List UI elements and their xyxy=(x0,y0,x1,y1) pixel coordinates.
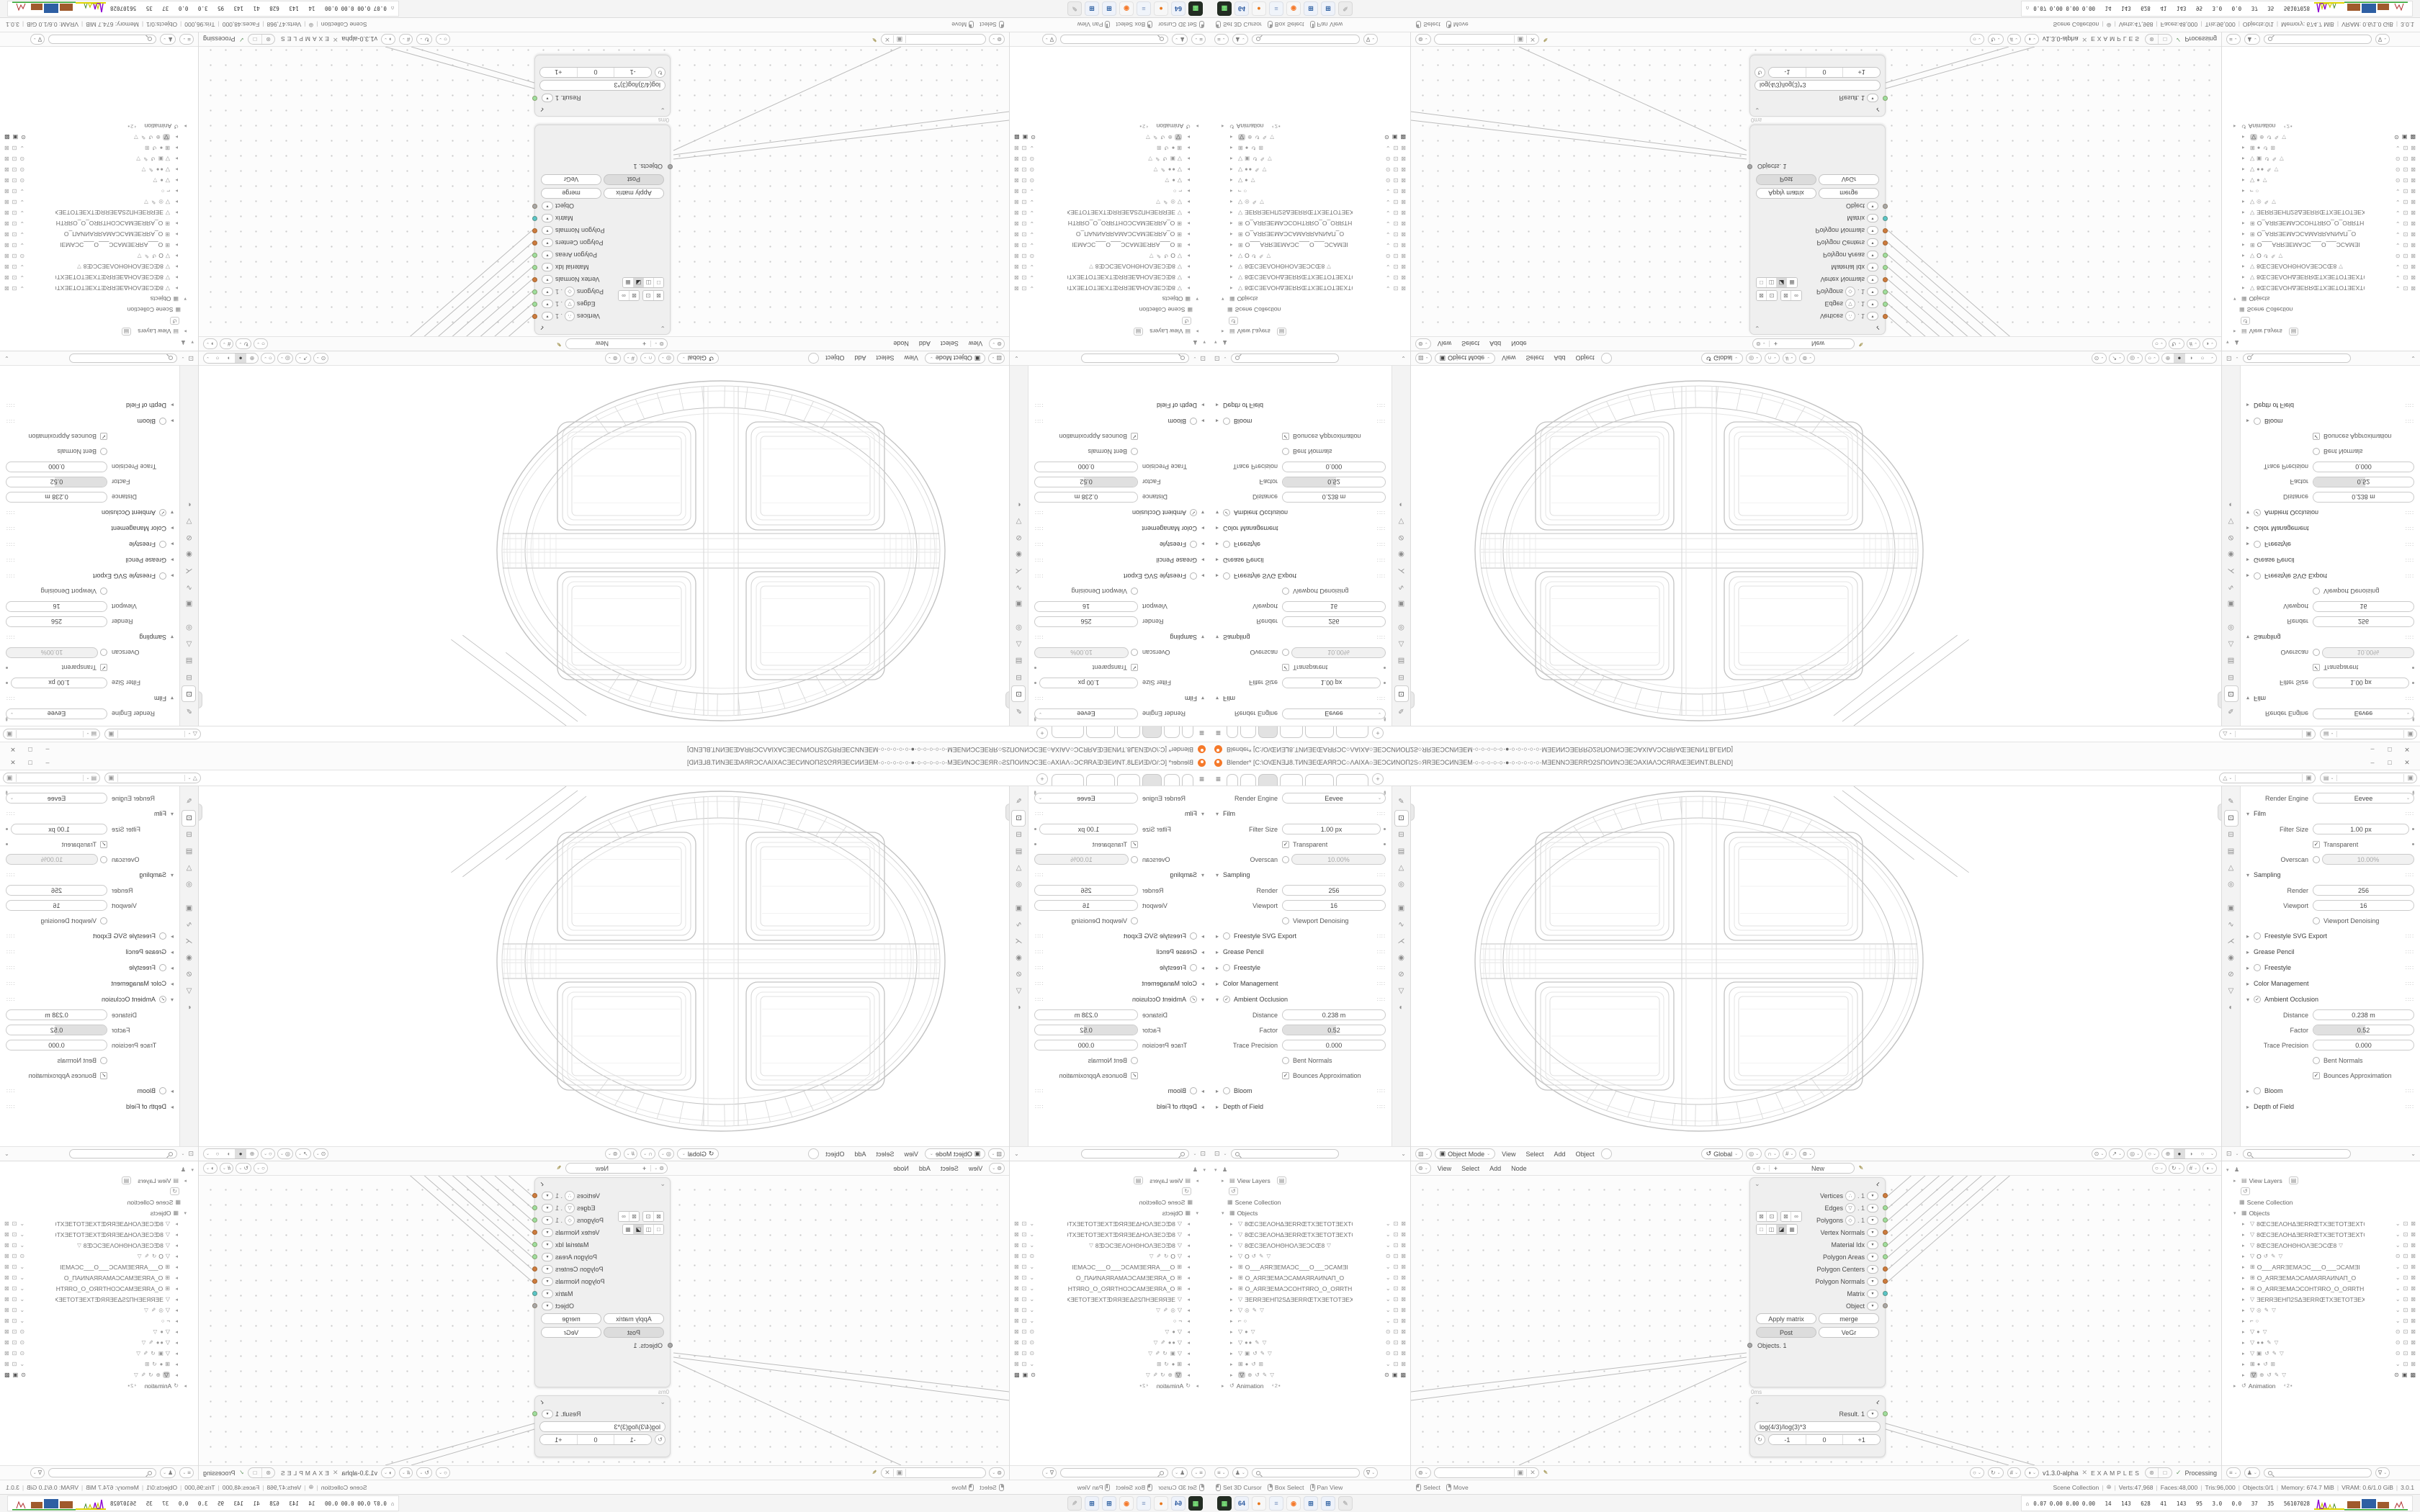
system-monitor[interactable]: ⌂0.07 0.00 0.00 0.00 14 143 628 41 143 9… xyxy=(2021,1495,2413,1511)
output-socket[interactable] xyxy=(1883,1242,1888,1247)
object-row[interactable]: ▸⊞O___AЯRƎEMAƆC___O___ƆCAMƎI⌄⊡⊠ xyxy=(1013,1261,1206,1272)
render-toggle[interactable]: ⊠ xyxy=(1401,253,1406,259)
render-toggle[interactable]: ⊠ xyxy=(1401,242,1406,248)
viewport-menu-view[interactable]: View xyxy=(1498,1151,1519,1158)
tree-name-field[interactable]: ▣✕ xyxy=(1434,1467,1539,1478)
modifiers-tab-icon[interactable]: ∿ xyxy=(2224,917,2238,933)
object-row[interactable]: ▸▽●● ✎ ▽⊙⊡⊠ xyxy=(1013,1337,1206,1348)
display-toggle-button[interactable]: ⊠ xyxy=(1781,291,1791,300)
visibility-toggle[interactable]: ⌄ xyxy=(2396,220,2401,227)
object-row[interactable]: ▸⊞O_AЯRƎEMAƆCOHTЯRO_O_OЯRTH⌄⊡⊠ xyxy=(2226,218,2417,229)
socket-dropdown[interactable]: ▼ xyxy=(1867,1241,1878,1249)
orientation-dropdown[interactable]: ↺Global⌄ xyxy=(1701,1148,1744,1159)
search-input[interactable] xyxy=(2243,354,2351,363)
display-mode-row[interactable]: ▾♟ xyxy=(1214,337,1407,348)
render-tab-icon[interactable]: ⊡ xyxy=(182,810,197,827)
filter-icon[interactable]: ∇⌄ xyxy=(1363,34,1378,45)
visibility-toggle[interactable]: ⊙ xyxy=(2394,1372,2399,1378)
screen-toggle[interactable]: ⊡ xyxy=(2403,1318,2408,1324)
view-layer-button[interactable]: ▤ xyxy=(1277,1176,1287,1184)
output-socket[interactable] xyxy=(1883,1291,1888,1296)
workspace-tab-1[interactable] xyxy=(1227,774,1238,786)
render-toggle[interactable]: ⊠ xyxy=(4,1253,9,1259)
screen-toggle[interactable]: ⊡ xyxy=(12,231,17,238)
screen-toggle[interactable]: ▣ xyxy=(1023,134,1028,140)
output-socket[interactable] xyxy=(532,1303,537,1308)
screen-toggle[interactable]: ⊡ xyxy=(12,1318,17,1324)
tool-tab-icon[interactable]: ✎ xyxy=(1012,702,1026,719)
screen-toggle[interactable]: ⊡ xyxy=(1022,1307,1027,1313)
checkbox[interactable] xyxy=(100,917,107,924)
section-chevron-icon[interactable]: ▾ xyxy=(2246,996,2254,1003)
render-toggle[interactable]: ⊠ xyxy=(4,285,9,292)
object-row[interactable]: ▸⊞O___AЯRƎEMAƆC___O___ƆCAMƎI⌄⊡⊠ xyxy=(1013,240,1206,251)
visibility-toggle[interactable]: ⌄ xyxy=(2396,1285,2401,1292)
collapse-icon[interactable]: ⌄ xyxy=(660,1398,665,1406)
scene-selector-value[interactable] xyxy=(2236,773,2302,783)
output-tab-icon[interactable]: ⊟ xyxy=(2224,827,2238,843)
scene-collection-row[interactable]: ▦Scene Collection xyxy=(1013,305,1206,315)
node-canvas[interactable]: ⌄⌐Vertices∴. 1▼Edges▽. 1▼Polygons◇. 1▼Ve… xyxy=(199,1176,1009,1465)
wireframe-shading-icon[interactable]: ⊕ xyxy=(2162,1149,2174,1158)
outliner-tree[interactable]: ▾♟▸▤View Layers▤↺▦Scene Collection▾▦Obje… xyxy=(1210,1161,1410,1465)
section-sampling[interactable]: ▾Sampling∷∷ xyxy=(1216,629,1386,645)
section-depth-of-field[interactable]: ▸Depth of Field∷∷ xyxy=(6,397,174,413)
output-socket[interactable] xyxy=(532,1254,537,1259)
display-toggle-button[interactable]: ∞ xyxy=(1791,291,1801,300)
taskbar-app-firefox[interactable]: ● xyxy=(1252,1496,1266,1511)
visibility-toggle[interactable]: ⌄ xyxy=(1386,145,1391,151)
render-toggle[interactable]: ⊠ xyxy=(2411,1285,2416,1292)
screen-toggle[interactable]: ⊡ xyxy=(1022,1274,1027,1281)
screen-toggle[interactable]: ⊡ xyxy=(12,1361,17,1367)
section-chevron-icon[interactable]: ▸ xyxy=(166,1088,174,1094)
visibility-toggle[interactable]: ⊙ xyxy=(19,1253,24,1259)
outliner-header-icon-0[interactable]: ≡⌄ xyxy=(2226,1467,2241,1478)
render-toggle[interactable]: ⊠ xyxy=(4,1242,9,1248)
output-socket[interactable] xyxy=(1883,314,1888,319)
screen-toggle[interactable]: ▣ xyxy=(2402,134,2408,140)
object-row[interactable]: ▸▽⊕ ↺ ✎ ▽⊙▣▩ xyxy=(2226,1369,2417,1380)
close-icon[interactable]: ✕ xyxy=(333,1469,339,1477)
outliner-tree[interactable]: ▾♟▸▤View Layers▤↺▦Scene Collection▾▦Obje… xyxy=(0,1161,198,1465)
render-toggle[interactable]: ⊠ xyxy=(2411,188,2416,194)
world-tab-icon[interactable]: ◎ xyxy=(2224,876,2238,893)
sverchok-viewer-node[interactable]: ⌄⌐Vertices∴. 1▼Edges▽. 1▼Polygons◇. 1▼Ve… xyxy=(534,125,671,335)
sv-toggle-pair[interactable]: ⊛□ xyxy=(2145,34,2172,45)
render-toggle[interactable]: ⊠ xyxy=(1014,199,1019,205)
viewport-editor-icon[interactable]: ▧⌄ xyxy=(988,353,1005,364)
visibility-toggle[interactable]: ⊙ xyxy=(1031,1372,1036,1378)
section-chevron-icon[interactable]: ▾ xyxy=(2246,510,2254,516)
output-socket[interactable] xyxy=(1883,1205,1888,1210)
sv-pair-icon[interactable]: □ xyxy=(2159,1468,2172,1477)
world-tab-icon[interactable]: ◎ xyxy=(182,876,197,893)
viewport-3d[interactable]: ▧⌄▣Object Mode⌄ViewSelectAddObject↺Globa… xyxy=(199,786,1009,1161)
node-menu-add[interactable]: Add xyxy=(915,1165,934,1172)
object-data-tab-icon[interactable]: ▽ xyxy=(2224,513,2238,529)
section-chevron-icon[interactable]: ▾ xyxy=(166,634,174,641)
section-chevron-icon[interactable]: ▸ xyxy=(166,1104,174,1110)
outliner-search-input[interactable] xyxy=(48,35,156,44)
shade-toggle-button[interactable]: ▦ xyxy=(1787,278,1797,287)
screen-toggle[interactable]: ⊡ xyxy=(12,1220,17,1227)
screen-toggle[interactable]: ⊡ xyxy=(1022,1350,1027,1356)
node-button-merge[interactable]: merge xyxy=(541,1313,601,1324)
render-toggle[interactable]: ⊠ xyxy=(1401,1242,1406,1248)
object-row[interactable]: ▸▽▣ ↺ ✎ ▽⊙⊡⊠ xyxy=(2226,1348,2417,1359)
render-toggle[interactable]: ⊠ xyxy=(4,1285,9,1292)
new-tree-button[interactable]: ⊚⌄+New xyxy=(565,1163,668,1174)
section-checkbox[interactable] xyxy=(1190,418,1197,425)
object-row[interactable]: ▸▽▣ ↺ ✎ ▽⊙⊡⊠ xyxy=(3,1348,194,1359)
view-layer-button[interactable]: ▤ xyxy=(2289,328,2299,336)
object-row[interactable]: ▸▽▣ ↺ ✎ ▽⊙⊡⊠ xyxy=(3,153,194,164)
object-row[interactable]: ▸⊞O_AЯRƎEMAƆCAMAЯRAИNAΠ_O⌄⊡⊠ xyxy=(1013,1272,1206,1283)
node-menu-node[interactable]: Node xyxy=(889,341,913,348)
output-socket[interactable] xyxy=(532,1193,537,1198)
annotate-circle[interactable] xyxy=(808,353,819,364)
visibility-toggle[interactable]: ⌄ xyxy=(2396,1220,2401,1227)
socket-dropdown[interactable]: ▼ xyxy=(1867,1410,1878,1418)
history-row[interactable]: ↺ xyxy=(3,315,194,326)
visibility-toggle[interactable]: ⌄ xyxy=(2396,231,2401,238)
search-input[interactable] xyxy=(1231,1149,1339,1158)
screen-toggle[interactable]: ⊡ xyxy=(12,1231,17,1238)
screen-toggle[interactable]: ⊡ xyxy=(12,264,17,270)
socket-dropdown[interactable]: ▼ xyxy=(1867,239,1878,248)
display-mode-row[interactable]: ▾♟ xyxy=(1214,1164,1407,1175)
taskbar-app-firefox[interactable]: ● xyxy=(1154,1,1168,16)
collapse-icon[interactable]: ⌄ xyxy=(660,107,665,114)
section-chevron-icon[interactable]: ▸ xyxy=(2246,526,2254,532)
checkbox[interactable]: ✓ xyxy=(1282,1072,1289,1079)
section-film[interactable]: ▾Film∷∷ xyxy=(6,690,174,706)
render-toggle[interactable]: ⊠ xyxy=(1014,166,1019,173)
section-freestyle-svg-export[interactable]: ▸Freestyle SVG Export∷∷ xyxy=(1034,568,1204,584)
object-row[interactable]: ▸⊞● ↺ ⊞⌄⊡⊠ xyxy=(3,143,194,153)
visibility-toggle[interactable]: ⊙ xyxy=(1031,134,1036,140)
render-toggle[interactable]: ⊠ xyxy=(4,274,9,281)
viewport-menu-select[interactable]: Select xyxy=(872,1151,897,1158)
output-socket[interactable] xyxy=(532,265,537,270)
section-chevron-icon[interactable]: ▸ xyxy=(166,933,174,940)
render-toggle[interactable]: ⊠ xyxy=(1014,1220,1019,1227)
value-field[interactable]: 0.238 m xyxy=(1034,1009,1138,1020)
section-chevron-icon[interactable]: ▸ xyxy=(166,418,174,425)
view-layer-tab-icon[interactable]: ▤ xyxy=(2224,843,2238,860)
wrap-icon[interactable]: ↻ xyxy=(655,67,665,78)
sv-footer-icon-3[interactable]: ◑⌄ xyxy=(2025,1467,2039,1478)
collapse-icon[interactable]: ⌄ xyxy=(1754,1180,1760,1188)
shade-toggle-button[interactable]: □ xyxy=(653,278,663,287)
render-toggle[interactable]: ⊠ xyxy=(2411,253,2416,259)
animation-row[interactable]: ▸↺Animation⁴2▪ xyxy=(1214,1380,1407,1391)
section-checkbox[interactable]: ✓ xyxy=(159,509,166,516)
section-chevron-icon[interactable]: ▸ xyxy=(1216,933,1223,940)
section-chevron-icon[interactable]: ▾ xyxy=(1216,811,1223,817)
visibility-toggle[interactable]: ⌄ xyxy=(2396,285,2401,292)
section-bloom[interactable]: ▸Bloom∷∷ xyxy=(2246,1083,2414,1099)
screen-toggle[interactable]: ⊡ xyxy=(2403,242,2408,248)
section-chevron-icon[interactable]: ▸ xyxy=(1216,949,1223,955)
render-toggle[interactable]: ▩ xyxy=(1014,134,1020,140)
taskbar-app-blender[interactable]: ◉ xyxy=(1286,1,1301,16)
display-toggle-button[interactable]: ⊠ xyxy=(629,291,639,300)
section-chevron-icon[interactable]: ▾ xyxy=(1197,811,1204,817)
output-socket[interactable] xyxy=(1883,228,1888,233)
scene-tab-icon[interactable]: △ xyxy=(1394,636,1409,652)
section-depth-of-field[interactable]: ▸Depth of Field∷∷ xyxy=(6,1099,174,1115)
visibility-toggle[interactable]: ⌄ xyxy=(19,285,24,292)
wrap-icon[interactable]: ↻ xyxy=(655,1434,665,1445)
shade-toggle-button[interactable]: ◪ xyxy=(1777,278,1787,287)
tool-tab-icon[interactable]: ✎ xyxy=(2224,702,2238,719)
screen-toggle[interactable]: ⊡ xyxy=(1022,1242,1027,1248)
sverchok-version[interactable]: v1.3.0-alpha xyxy=(2043,36,2079,43)
menu-icon[interactable]: ≡ xyxy=(1199,728,1204,738)
object-row[interactable]: ▸▽8ŒCƎEΛOHΔƎERRŒTXƎETOTƎEXTŒ8⌄⊡⊠ xyxy=(1013,1218,1206,1229)
copy-icon[interactable]: ▣ xyxy=(105,774,118,782)
viewport-menu-select[interactable]: Select xyxy=(872,355,897,362)
render-toggle[interactable]: ⊠ xyxy=(1014,1307,1019,1313)
render-toggle[interactable]: ⊠ xyxy=(4,1296,9,1302)
section-freestyle-svg-export[interactable]: ▸Freestyle SVG Export∷∷ xyxy=(1216,928,1386,944)
section-chevron-icon[interactable]: ▸ xyxy=(1216,981,1223,987)
output-socket[interactable] xyxy=(532,1411,537,1416)
toggle-circle[interactable] xyxy=(100,649,107,657)
history-icon[interactable]: ↺ xyxy=(170,317,179,325)
checkbox[interactable] xyxy=(2313,588,2320,595)
object-row[interactable]: ▸▽8ŒCƎEΛOHΔƎERRŒTXƎETOTƎEXTŒ8⌄⊡⊠ xyxy=(1013,283,1206,294)
scene-collection-row[interactable]: ▦Scene Collection xyxy=(1214,305,1407,315)
workspace-tab-3[interactable] xyxy=(1258,774,1278,786)
viewport-menu-object[interactable]: Object xyxy=(1572,355,1598,362)
screen-toggle[interactable]: ⊡ xyxy=(2403,231,2408,238)
sverchok-formula-node[interactable]: ⌄⌐Result. 1▼log(4/3)/log(3)*3↻-10+1 xyxy=(534,1395,671,1457)
tree-name-field[interactable]: ▣✕ xyxy=(881,34,986,45)
screen-toggle[interactable]: ⊡ xyxy=(1022,199,1027,205)
object-tab-icon[interactable]: ▣ xyxy=(1012,595,1026,612)
visibility-toggle[interactable]: ⌄ xyxy=(1386,1318,1391,1324)
object-row[interactable]: ▸▽● ▽⊙⊡⊠ xyxy=(1013,1326,1206,1337)
physics-tab-icon[interactable]: ◉ xyxy=(2224,546,2238,562)
sv-footer-icon-2[interactable]: #⌄ xyxy=(399,1467,413,1478)
render-toggle[interactable]: ▩ xyxy=(1014,1372,1020,1378)
value-field[interactable]: 16 xyxy=(1282,601,1386,612)
socket-dropdown[interactable]: ▼ xyxy=(1867,1277,1878,1286)
search-input[interactable] xyxy=(2243,1149,2351,1158)
constraints-tab-icon[interactable]: ⊘ xyxy=(2224,966,2238,983)
visibility-toggle[interactable]: ⊙ xyxy=(1386,1339,1391,1346)
material-tab-icon[interactable]: ◐ xyxy=(182,999,197,1016)
render-toggle[interactable]: ⊠ xyxy=(2411,177,2416,184)
node-header-icon-1[interactable]: ↻⌄ xyxy=(2169,338,2184,349)
output-socket[interactable] xyxy=(532,1242,537,1247)
taskbar-app-blender[interactable]: ◉ xyxy=(1286,1496,1301,1511)
node-button-vegr[interactable]: VeGr xyxy=(1819,174,1879,185)
history-row[interactable]: ↺ xyxy=(2226,315,2417,326)
object-row[interactable]: ▸▽8ŒCƎEΛOHΘHOΛƎEƆCŒ8▽⌄⊡⊠ xyxy=(2226,1240,2417,1251)
section-chevron-icon[interactable]: ▸ xyxy=(2246,965,2254,971)
screen-toggle[interactable]: ⊡ xyxy=(1022,166,1027,173)
workspace-tab-5[interactable] xyxy=(1305,726,1334,738)
visibility-toggle[interactable]: ⊙ xyxy=(1384,1372,1389,1378)
section-chevron-icon[interactable]: ▸ xyxy=(2246,418,2254,425)
node-editor-icon[interactable]: ⊚⌄ xyxy=(1415,338,1431,349)
section-checkbox[interactable] xyxy=(1223,932,1230,940)
section-color-management[interactable]: ▸Color Management∷∷ xyxy=(6,976,174,991)
display-toggle-button[interactable]: ⊠ xyxy=(1757,291,1767,300)
magnet-snap-icon[interactable]: ∩⌄ xyxy=(640,1148,655,1159)
taskbar-app-notepad[interactable]: ≡ xyxy=(1137,1,1151,16)
value-field[interactable]: 10.00% xyxy=(1291,854,1386,865)
screen-toggle[interactable]: ⊡ xyxy=(1022,1339,1027,1346)
section-chevron-icon[interactable]: ▸ xyxy=(166,541,174,548)
physics-tab-icon[interactable]: ◉ xyxy=(1012,546,1026,562)
value-field[interactable]: 256 xyxy=(1282,885,1386,896)
value-field[interactable]: 0.000 xyxy=(1034,462,1138,472)
node-header-icon-2[interactable]: #⌄ xyxy=(220,1163,233,1174)
outliner-header-icon-0[interactable]: ≡⌄ xyxy=(2226,34,2241,45)
section-chevron-icon[interactable]: ▸ xyxy=(1216,541,1223,548)
outliner-search-input[interactable] xyxy=(48,1468,156,1477)
object-row[interactable]: ▸▽●● ✎ ▽⊙⊡⊠ xyxy=(1214,164,1407,175)
object-data-tab-icon[interactable]: ▽ xyxy=(1012,513,1026,529)
visibility-toggle[interactable]: ⌄ xyxy=(2396,1318,2401,1324)
render-toggle[interactable]: ⊠ xyxy=(1014,253,1019,259)
particles-tab-icon[interactable]: ⋌ xyxy=(1394,933,1409,950)
socket-dropdown[interactable]: ▼ xyxy=(542,251,553,260)
animation-row[interactable]: ▸↺Animation⁴2▪ xyxy=(1013,1380,1206,1391)
history-row[interactable]: ↺ xyxy=(3,1186,194,1197)
close-icon[interactable]: ✕ xyxy=(2082,1469,2088,1477)
render-toggle[interactable]: ⊠ xyxy=(2411,1274,2416,1281)
render-tab-icon[interactable]: ⊡ xyxy=(2224,685,2238,702)
object-tab-icon[interactable]: ▣ xyxy=(2224,595,2238,612)
screen-toggle[interactable]: ⊡ xyxy=(2403,285,2408,292)
object-row[interactable]: ▸▽8ŒCƎEΛOHΔƎERRŒTXƎETOTƎEXTŒ8⌄⊡⊠ xyxy=(1214,283,1407,294)
search-input[interactable] xyxy=(69,354,177,363)
proportional-edit-icon[interactable]: ⊚⌄ xyxy=(605,353,621,364)
visibility-toggle[interactable]: ⌄ xyxy=(1029,242,1034,248)
value-field[interactable]: 1.00 px xyxy=(2313,824,2409,834)
section-bloom[interactable]: ▸Bloom∷∷ xyxy=(1034,1083,1204,1099)
history-icon[interactable]: ↺ xyxy=(1229,317,1238,325)
render-toggle[interactable]: ⊠ xyxy=(2411,156,2416,162)
socket-dropdown[interactable]: ▼ xyxy=(1867,264,1878,272)
render-tab-icon[interactable]: ⊡ xyxy=(1394,685,1409,702)
tree-mini-icon[interactable]: ▣ xyxy=(1514,1469,1527,1477)
render-toggle[interactable]: ⊠ xyxy=(2411,231,2416,238)
display-toggle-button[interactable]: ⊠ xyxy=(653,1212,663,1221)
visibility-toggle[interactable]: ⌄ xyxy=(1386,1296,1391,1302)
gizmo-icon[interactable]: ↗⌄ xyxy=(295,1148,311,1159)
render-toggle[interactable]: ⊠ xyxy=(1401,1274,1406,1281)
formula-input[interactable]: log(4/3)/log(3)*3 xyxy=(539,80,665,91)
section-chevron-icon[interactable]: ▸ xyxy=(2246,949,2254,955)
viewport-menu-select[interactable]: Select xyxy=(1523,355,1548,362)
title-bar[interactable]: Blender* [C:\O\ŒNƎ⅃8.TИNƎEŒAЯRƆC○ΛAIXA○Ǝ… xyxy=(1210,756,2420,770)
value-field[interactable]: 0.000 xyxy=(6,1040,107,1050)
value-field[interactable]: 256 xyxy=(2313,616,2414,627)
node-editor[interactable]: ⊚⌄ViewSelectAddNode⊚⌄+New✒○⌄↻⌄#⌄◑⌄⌄⌐Vert… xyxy=(199,32,1009,351)
value-field[interactable]: 0.238 m xyxy=(1282,1009,1386,1020)
render-toggle[interactable]: ⊠ xyxy=(1014,242,1019,248)
scene-selector[interactable]: △⌄▣ xyxy=(104,729,201,739)
output-socket[interactable] xyxy=(1883,265,1888,270)
render-toggle[interactable]: ⊠ xyxy=(1014,274,1019,281)
screen-toggle[interactable]: ⊡ xyxy=(1394,1307,1399,1313)
screen-toggle[interactable]: ⊡ xyxy=(2403,177,2408,184)
particles-tab-icon[interactable]: ⋌ xyxy=(182,933,197,950)
screen-toggle[interactable]: ⊡ xyxy=(1022,242,1027,248)
screen-toggle[interactable]: ⊡ xyxy=(12,210,17,216)
socket-dropdown[interactable]: ▼ xyxy=(542,1192,553,1200)
socket-dropdown[interactable]: ▼ xyxy=(1867,1192,1878,1200)
title-bar[interactable]: Blender* [C:\O\ŒNƎ⅃8.TИNƎEŒAЯRƆC○ΛAIXA○Ǝ… xyxy=(0,742,1210,756)
output-socket[interactable] xyxy=(1883,1193,1888,1198)
object-row[interactable]: ▸▽▣ ↺ ✎ ▽⊙⊡⊠ xyxy=(1013,1348,1206,1359)
visibility-toggle[interactable]: ⌄ xyxy=(1029,210,1034,216)
value-field[interactable]: 0.238 m xyxy=(2313,492,2414,503)
visibility-toggle[interactable]: ⌄ xyxy=(19,1242,24,1248)
output-socket[interactable] xyxy=(532,204,537,209)
object-row[interactable]: ▸▽8ŒCƎEΛOHΘHOΛƎEƆCŒ8▽⌄⊡⊠ xyxy=(1013,1240,1206,1251)
scene-collection-row[interactable]: ▦Scene Collection xyxy=(1214,1197,1407,1207)
value-field[interactable]: 0.000 xyxy=(6,462,107,472)
visibility-toggle[interactable]: ⊙ xyxy=(19,1339,24,1346)
value-field[interactable]: 0.238 m xyxy=(6,492,107,503)
screen-toggle[interactable]: ⊡ xyxy=(1394,285,1399,292)
object-row[interactable]: ▸▽● ▽⊙⊡⊠ xyxy=(2226,1326,2417,1337)
modifiers-tab-icon[interactable]: ∿ xyxy=(182,917,197,933)
magnet-snap-icon[interactable]: ∩⌄ xyxy=(1765,353,1780,364)
render-toggle[interactable]: ⊠ xyxy=(4,220,9,227)
world-tab-icon[interactable]: ◎ xyxy=(1012,619,1026,636)
value-field[interactable]: 0.000 xyxy=(2313,462,2414,472)
history-row[interactable]: ↺ xyxy=(1013,1186,1206,1197)
render-engine-dropdown[interactable]: Eevee⌄ xyxy=(2313,708,2414,719)
filter-dropdown[interactable]: ⌄ xyxy=(4,355,9,361)
sv-footer-icon-0[interactable]: ○⌄ xyxy=(436,1467,450,1478)
mode-dropdown[interactable]: ▣Object Mode⌄ xyxy=(925,353,986,364)
socket-dropdown[interactable]: ▼ xyxy=(542,1204,553,1212)
object-row[interactable]: ▸▽O↺ ✎ ▽⊙⊡⊠ xyxy=(1013,251,1206,261)
gizmo-icon[interactable]: ↗⌄ xyxy=(2109,353,2125,364)
particles-tab-icon[interactable]: ⋌ xyxy=(2224,933,2238,950)
checkbox[interactable] xyxy=(100,1057,107,1064)
physics-tab-icon[interactable]: ◉ xyxy=(1012,950,1026,966)
screen-toggle[interactable]: ⊡ xyxy=(1394,1350,1399,1356)
render-toggle[interactable]: ⊠ xyxy=(4,1318,9,1324)
visibility-toggle[interactable]: ⌄ xyxy=(2396,274,2401,281)
section-film[interactable]: ▾Film∷∷ xyxy=(2246,806,2414,822)
section-chevron-icon[interactable]: ▸ xyxy=(1216,573,1223,580)
output-socket[interactable] xyxy=(532,240,537,246)
minimize-button[interactable]: – xyxy=(39,759,56,767)
system-monitor[interactable]: ⌂0.07 0.00 0.00 0.00 14 143 628 41 143 9… xyxy=(7,1,399,17)
modifiers-tab-icon[interactable]: ∿ xyxy=(1012,917,1026,933)
mode-dropdown[interactable]: ▣Object Mode⌄ xyxy=(1435,1148,1496,1159)
copy-icon[interactable]: ▣ xyxy=(105,730,118,738)
object-row[interactable]: ▸▽8ŒCƎEΛOHΔƎERRŒTXƎETOTƎEXTŒ8⌄⊡⊠ xyxy=(1214,1229,1407,1240)
object-row[interactable]: ▸⊞O_AЯRƎEMAƆCOHTЯRO_O_OЯRTH⌄⊡⊠ xyxy=(1214,1283,1407,1294)
socket-dropdown[interactable]: ▼ xyxy=(1867,1228,1878,1237)
section-chevron-icon[interactable]: ▸ xyxy=(1197,949,1204,955)
object-row[interactable]: ▸⊞O___AЯRƎEMAƆC___O___ƆCAMƎI⌄⊡⊠ xyxy=(2226,1261,2417,1272)
value-field[interactable]: 0.238 m xyxy=(6,1009,107,1020)
